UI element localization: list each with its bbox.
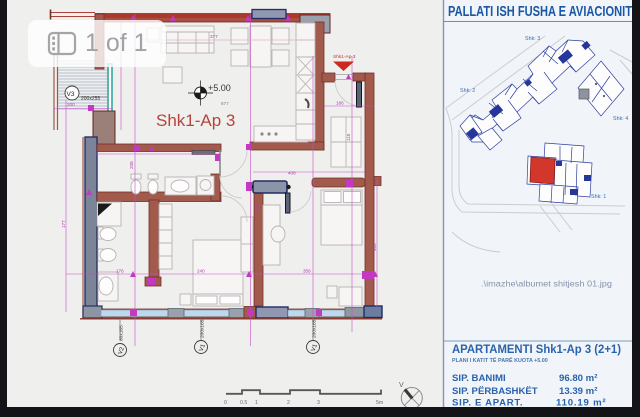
svg-text:SIP. BANIMI: SIP. BANIMI bbox=[452, 373, 506, 384]
svg-text:177: 177 bbox=[61, 220, 66, 228]
svg-text:3: 3 bbox=[317, 400, 320, 406]
svg-text:PALLATI ISH FUSHA E AVIACIONIT: PALLATI ISH FUSHA E AVIACIONIT bbox=[448, 4, 632, 20]
svg-text:PLANI I KATIT TË PARË KUOTA +: PLANI I KATIT TË PARË KUOTA +5.00 bbox=[452, 357, 548, 364]
svg-text:405: 405 bbox=[254, 203, 259, 211]
svg-text:APARTAMENTI Shk1-Ap 3 (2+1): APARTAMENTI Shk1-Ap 3 (2+1) bbox=[452, 342, 621, 356]
svg-text:200x165: 200x165 bbox=[200, 319, 206, 338]
svg-text:Shk: 4: Shk: 4 bbox=[613, 116, 628, 122]
svg-text:SIP. E APART.: SIP. E APART. bbox=[452, 398, 523, 409]
svg-text:Shk1-Ap 3: Shk1-Ap 3 bbox=[333, 54, 356, 60]
svg-text:+5.00: +5.00 bbox=[208, 83, 231, 93]
svg-text:200x165: 200x165 bbox=[312, 319, 318, 338]
svg-text:377: 377 bbox=[210, 34, 218, 39]
svg-text:SIP. PËRBASHKËT: SIP. PËRBASHKËT bbox=[452, 386, 538, 397]
svg-text:Shk: 1: Shk: 1 bbox=[591, 194, 606, 200]
svg-text:V3: V3 bbox=[67, 91, 75, 98]
svg-text:0.5: 0.5 bbox=[240, 400, 247, 406]
svg-text:200: 200 bbox=[67, 102, 75, 107]
svg-text:Shk: 3: Shk: 3 bbox=[525, 36, 540, 42]
svg-text:Shk1-Ap 3: Shk1-Ap 3 bbox=[156, 111, 235, 130]
svg-text:358: 358 bbox=[303, 269, 311, 274]
svg-text:13.39 m²: 13.39 m² bbox=[559, 386, 597, 397]
svg-text:240: 240 bbox=[197, 269, 205, 274]
svg-text:5m: 5m bbox=[376, 400, 383, 406]
svg-text:1 of 1: 1 of 1 bbox=[85, 29, 148, 57]
svg-text:2: 2 bbox=[287, 400, 290, 406]
svg-text:1: 1 bbox=[255, 400, 258, 406]
svg-text:0: 0 bbox=[224, 400, 227, 406]
svg-text:400: 400 bbox=[372, 243, 377, 251]
svg-text:80x165: 80x165 bbox=[119, 325, 125, 341]
svg-text:186: 186 bbox=[336, 101, 344, 106]
svg-text:V: V bbox=[399, 382, 404, 389]
svg-text:115: 115 bbox=[346, 133, 351, 141]
svg-text:208: 208 bbox=[129, 161, 134, 169]
svg-text:96.80 m²: 96.80 m² bbox=[559, 373, 597, 384]
svg-text:176: 176 bbox=[116, 269, 124, 274]
svg-text:Shk: 2: Shk: 2 bbox=[460, 88, 475, 94]
svg-text:408: 408 bbox=[288, 171, 296, 176]
svg-text:677: 677 bbox=[221, 101, 229, 106]
svg-text:.\imazhe\albumet shitjesh 01.j: .\imazhe\albumet shitjesh 01.jpg bbox=[481, 280, 612, 289]
svg-text:110.19 m²: 110.19 m² bbox=[556, 398, 606, 409]
